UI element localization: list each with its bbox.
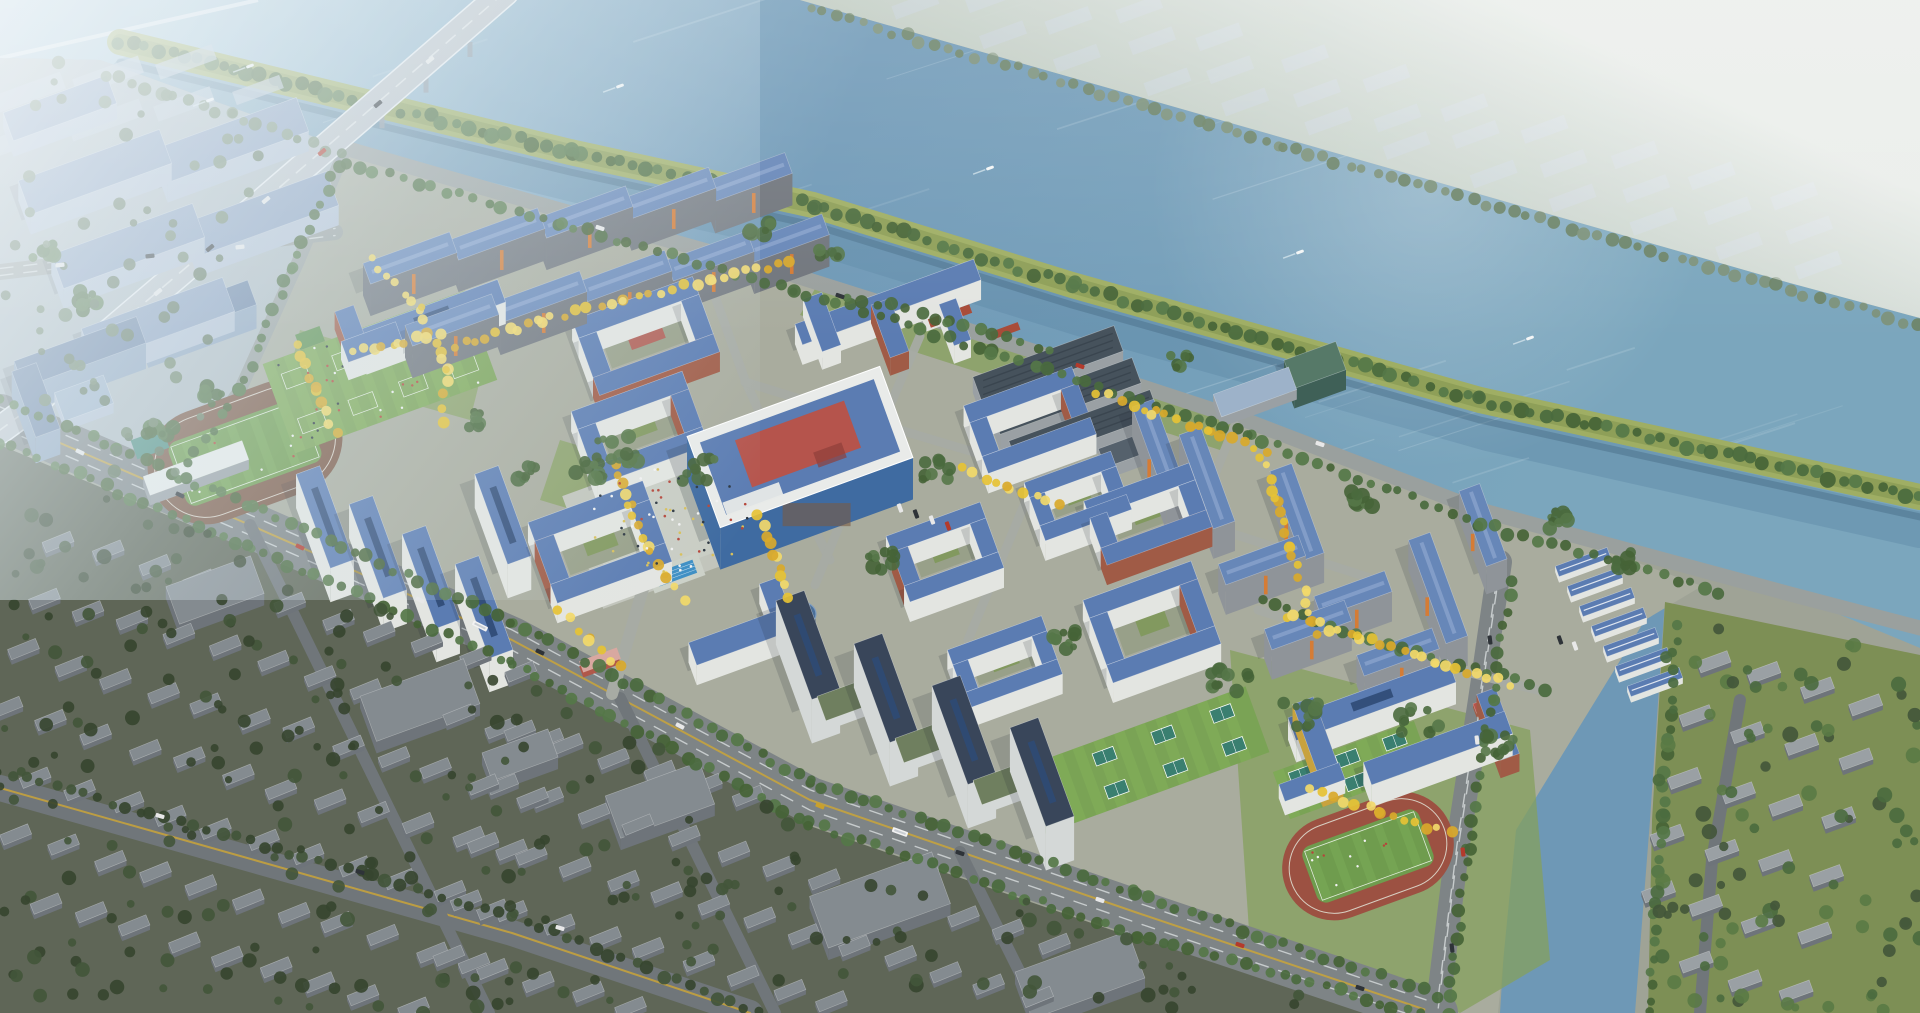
levee-tree xyxy=(1408,376,1419,387)
residential-tree xyxy=(374,603,388,617)
residential-tree xyxy=(202,908,215,921)
residential-tree xyxy=(336,659,346,669)
street-tree xyxy=(707,722,718,733)
street-tree xyxy=(1443,976,1455,988)
street-tree xyxy=(969,875,978,884)
park-tree xyxy=(1067,627,1081,641)
levee-tree xyxy=(1898,489,1913,504)
ginkgo-tree xyxy=(1255,453,1264,462)
street-tree xyxy=(557,643,566,652)
ginkgo-tree xyxy=(780,580,789,589)
street-tree xyxy=(668,705,677,714)
street-tree xyxy=(1167,939,1179,951)
residential-tree xyxy=(22,633,29,640)
facade-accent-stripe xyxy=(1310,641,1314,660)
street-tree xyxy=(690,758,703,771)
street-tree xyxy=(765,758,775,768)
park-tree xyxy=(1423,706,1432,715)
street-tree xyxy=(1672,620,1682,630)
east-bank-tree xyxy=(1829,880,1839,890)
residential-tree xyxy=(375,806,383,814)
street-tree xyxy=(1475,771,1484,780)
east-bank-tree xyxy=(1750,681,1762,693)
east-bank-tree xyxy=(1702,824,1717,839)
street-tree xyxy=(1643,565,1653,575)
east-bank-tree xyxy=(1715,938,1725,948)
ginkgo-tree xyxy=(1275,507,1286,518)
residential-tree xyxy=(186,757,196,767)
east-bank-tree xyxy=(1892,838,1902,848)
levee-tree xyxy=(1580,420,1590,430)
street-tree xyxy=(52,780,62,790)
residential-tree xyxy=(75,962,90,977)
street-tree xyxy=(807,775,816,784)
residential-tree xyxy=(410,770,422,782)
ginkgo-tree xyxy=(1300,598,1310,608)
street-tree xyxy=(984,347,998,361)
residential-tree xyxy=(17,767,26,776)
street-tree xyxy=(584,697,594,707)
east-bank-tree xyxy=(1822,1001,1834,1013)
residential-tree xyxy=(9,599,20,610)
ginkgo-tree xyxy=(1433,824,1440,831)
park-tree xyxy=(1364,498,1380,514)
street-tree xyxy=(1295,943,1304,952)
street-tree xyxy=(992,879,1006,893)
residential-tree xyxy=(810,932,823,945)
street-tree xyxy=(605,668,619,682)
street-tree xyxy=(455,636,464,645)
street-tree xyxy=(1666,725,1675,734)
street-tree xyxy=(467,641,477,651)
residential-tree xyxy=(124,639,137,652)
east-bank-tree xyxy=(1656,808,1671,823)
residential-tree xyxy=(229,668,241,680)
street-tree xyxy=(1650,936,1660,946)
street-tree xyxy=(858,795,869,806)
residential-tree xyxy=(127,900,135,908)
street-tree xyxy=(743,743,752,752)
residential-tree xyxy=(491,805,502,816)
street-tree xyxy=(1651,925,1662,936)
campus-aerial-rendering xyxy=(0,0,1920,1013)
east-bank-tree xyxy=(1689,873,1703,887)
residential-tree xyxy=(1138,961,1146,969)
street-tree xyxy=(898,810,906,818)
ginkgo-tree xyxy=(1284,542,1295,553)
east-bank-tree xyxy=(1782,861,1795,874)
street-tree xyxy=(1282,448,1293,459)
residential-tree xyxy=(366,857,378,869)
street-tree xyxy=(246,835,256,845)
street-tree xyxy=(66,784,76,794)
street-tree xyxy=(1039,896,1047,904)
east-bank-tree xyxy=(1778,682,1788,692)
residential-tree xyxy=(33,989,47,1003)
street-tree xyxy=(1060,864,1072,876)
street-tree xyxy=(602,709,616,723)
residential-tree xyxy=(1169,987,1179,997)
residential-tree xyxy=(590,975,600,985)
residential-tree xyxy=(672,858,681,867)
park-tree xyxy=(1481,746,1491,756)
street-tree xyxy=(1062,907,1075,920)
street-tree xyxy=(518,623,532,637)
levee-tree xyxy=(1500,401,1512,413)
residential-tree xyxy=(774,887,783,896)
park-tree xyxy=(1620,550,1635,565)
east-bank-tree xyxy=(1867,989,1877,999)
residential-tree xyxy=(675,911,684,920)
residential-tree xyxy=(158,619,168,629)
street-tree xyxy=(565,693,577,705)
residential-tree xyxy=(48,799,58,809)
residential-tree xyxy=(212,756,225,769)
ginkgo-tree xyxy=(1129,401,1140,412)
residential-tree xyxy=(286,867,299,880)
ginkgo-tree xyxy=(597,645,606,654)
residential-tree xyxy=(64,837,72,845)
residential-tree xyxy=(715,910,725,920)
residential-tree xyxy=(623,736,637,750)
residential-tree xyxy=(566,780,580,794)
street-tree xyxy=(1349,991,1358,1000)
street-tree xyxy=(464,901,474,911)
street-tree xyxy=(506,911,517,922)
residential-tree xyxy=(91,668,102,679)
street-tree xyxy=(1470,801,1482,813)
ginkgo-tree xyxy=(1401,647,1409,655)
street-tree xyxy=(1404,1005,1413,1013)
east-bank-tree xyxy=(1877,787,1892,802)
atmosphere-sheen xyxy=(0,0,1920,340)
street-tree xyxy=(1295,452,1309,466)
ginkgo-tree xyxy=(1366,801,1376,811)
street-tree xyxy=(493,906,504,917)
street-tree xyxy=(1647,998,1655,1006)
street-tree xyxy=(1353,475,1363,485)
levee-tree xyxy=(1878,482,1888,492)
levee-tree xyxy=(1348,356,1359,367)
levee-tree xyxy=(1655,432,1665,442)
ginkgo-tree xyxy=(1400,817,1408,825)
residential-tree xyxy=(163,835,175,847)
residential-tree xyxy=(1047,921,1062,936)
levee-tree xyxy=(1463,390,1472,399)
residential-tree xyxy=(124,947,135,958)
residential-tree xyxy=(203,984,213,994)
street-tree xyxy=(1668,696,1677,705)
residential-tree xyxy=(354,979,368,993)
residential-tree xyxy=(925,949,938,962)
residential-tree xyxy=(425,903,437,915)
ginkgo-tree xyxy=(1054,499,1064,509)
residential-tree xyxy=(161,953,175,967)
street-tree xyxy=(925,817,938,830)
street-tree xyxy=(711,992,725,1006)
street-tree xyxy=(143,807,155,819)
levee-tree xyxy=(1744,452,1756,464)
street-tree xyxy=(739,784,753,798)
residential-tree xyxy=(340,609,353,622)
ginkgo-tree xyxy=(1440,660,1452,672)
street-tree xyxy=(1524,679,1535,690)
park-tree xyxy=(926,468,938,480)
street-tree xyxy=(1654,855,1663,864)
street-tree xyxy=(1698,582,1712,596)
ginkgo-tree xyxy=(1338,797,1349,808)
street-tree xyxy=(1660,796,1671,807)
street-tree xyxy=(542,633,555,646)
ginkgo-tree xyxy=(1195,421,1204,430)
east-bank-tree xyxy=(1714,956,1729,971)
residential-tree xyxy=(435,973,450,988)
street-tree xyxy=(915,812,927,824)
levee-tree xyxy=(1723,447,1734,458)
levee-tree xyxy=(1669,437,1679,447)
residential-tree xyxy=(686,957,696,967)
street-tree xyxy=(1236,925,1250,939)
residential-tree xyxy=(332,880,345,893)
ginkgo-tree xyxy=(1323,625,1335,637)
ginkgo-tree xyxy=(1250,445,1257,452)
street-tree xyxy=(665,741,679,755)
residential-tree xyxy=(781,817,795,831)
east-bank-tree xyxy=(1819,905,1833,919)
residential-tree xyxy=(683,866,693,876)
levee-tree xyxy=(1472,391,1486,405)
street-tree xyxy=(1448,509,1458,519)
residential-tree xyxy=(220,967,232,979)
street-tree xyxy=(738,1004,747,1013)
street-tree xyxy=(545,679,553,687)
residential-tree xyxy=(333,688,343,698)
street-tree xyxy=(869,795,882,808)
residential-tree xyxy=(618,891,629,902)
east-bank-tree xyxy=(1763,724,1773,734)
street-tree xyxy=(900,851,911,862)
residential-tree xyxy=(98,989,109,1000)
residential-tree xyxy=(163,822,172,831)
street-tree xyxy=(1128,887,1142,901)
street-tree xyxy=(645,730,654,739)
east-bank-tree xyxy=(1689,656,1702,669)
park-tree xyxy=(1508,735,1518,745)
residential-tree xyxy=(541,915,550,924)
street-tree xyxy=(443,628,453,638)
street-tree xyxy=(1486,707,1496,717)
ginkgo-tree xyxy=(1315,617,1325,627)
street-tree xyxy=(996,840,1006,850)
east-bank-tree xyxy=(1719,842,1728,851)
residential-tree xyxy=(708,944,719,955)
street-tree xyxy=(1205,416,1217,428)
ginkgo-tree xyxy=(1417,651,1427,661)
residential-tree xyxy=(68,938,76,946)
street-tree xyxy=(1009,846,1022,859)
street-tree xyxy=(1045,346,1053,354)
street-tree xyxy=(1266,968,1276,978)
street-tree xyxy=(870,838,881,849)
street-tree xyxy=(1323,981,1331,989)
park-tree xyxy=(1166,351,1175,360)
street-tree xyxy=(630,678,644,692)
park-tree xyxy=(886,549,900,563)
east-bank-tree xyxy=(1883,944,1896,957)
street-tree xyxy=(1255,435,1269,449)
street-tree xyxy=(78,788,87,797)
residential-tree xyxy=(106,913,116,923)
ginkgo-tree xyxy=(1280,517,1288,525)
ginkgo-tree xyxy=(1302,589,1310,597)
levee-tree xyxy=(1616,424,1630,438)
street-tree xyxy=(480,903,490,913)
street-tree xyxy=(1496,634,1504,642)
residential-tree xyxy=(760,800,774,814)
residential-tree xyxy=(1093,992,1105,1004)
street-tree xyxy=(1491,647,1504,660)
residential-tree xyxy=(561,707,573,719)
residential-tree xyxy=(506,997,514,1005)
street-tree xyxy=(1673,577,1684,588)
levee-tree xyxy=(1589,417,1603,431)
street-tree xyxy=(1213,914,1222,923)
residential-tree xyxy=(490,715,505,730)
east-bank-tree xyxy=(1755,915,1768,928)
street-tree xyxy=(1573,548,1584,559)
east-bank-tree xyxy=(1704,709,1715,720)
ginkgo-tree xyxy=(1348,799,1360,811)
east-bank-tree xyxy=(1781,997,1795,1011)
levee-tree xyxy=(1888,485,1898,495)
street-tree xyxy=(815,782,827,794)
ginkgo-tree xyxy=(1462,669,1471,678)
residential-tree xyxy=(404,871,418,885)
east-bank-tree xyxy=(1883,927,1897,941)
street-tree xyxy=(794,768,805,779)
street-tree xyxy=(950,866,962,878)
levee-tree xyxy=(1525,408,1534,417)
park-tree xyxy=(1221,668,1234,681)
street-tree xyxy=(1506,575,1518,587)
street-tree xyxy=(109,801,118,810)
street-tree xyxy=(1013,355,1024,366)
residential-tree xyxy=(107,840,118,851)
residential-tree xyxy=(465,783,473,791)
residential-tree xyxy=(63,701,74,712)
residential-tree xyxy=(1165,962,1173,970)
levee-tree xyxy=(1358,357,1373,372)
street-tree xyxy=(779,764,791,776)
street-tree xyxy=(508,660,517,669)
east-bank-tree xyxy=(1651,885,1665,899)
residential-tree xyxy=(313,743,321,751)
residential-tree xyxy=(82,608,95,621)
street-tree xyxy=(1079,375,1091,387)
ginkgo-tree xyxy=(1375,640,1385,650)
street-tree xyxy=(1258,595,1267,604)
ginkgo-tree xyxy=(1185,421,1196,432)
residential-tree xyxy=(187,831,196,840)
ginkgo-tree xyxy=(1305,609,1312,616)
residential-tree xyxy=(470,973,479,982)
east-bank-tree xyxy=(1717,994,1725,1002)
street-tree xyxy=(1389,980,1398,989)
street-tree xyxy=(1444,989,1457,1002)
levee-tree xyxy=(1679,441,1694,456)
ginkgo-tree xyxy=(1305,617,1314,626)
ginkgo-tree xyxy=(1374,808,1385,819)
ginkgo-tree xyxy=(767,550,778,561)
park-tree xyxy=(1351,489,1362,500)
street-tree xyxy=(413,883,423,893)
street-tree xyxy=(601,949,615,963)
residential-tree xyxy=(1289,999,1299,1009)
residential-tree xyxy=(217,899,230,912)
street-tree xyxy=(1546,537,1557,548)
levee-tree xyxy=(1861,482,1873,494)
street-tree xyxy=(1448,952,1457,961)
street-tree xyxy=(927,857,938,868)
levee-tree xyxy=(1283,341,1295,353)
residential-tree xyxy=(223,614,236,627)
street-tree xyxy=(1532,536,1544,548)
residential-tree xyxy=(297,845,305,853)
street-tree xyxy=(1668,664,1679,675)
street-tree xyxy=(1489,519,1502,532)
street-tree xyxy=(1116,886,1124,894)
ginkgo-tree xyxy=(1270,494,1278,502)
east-bank-tree xyxy=(1699,932,1709,942)
street-tree xyxy=(1393,486,1401,494)
levee-tree xyxy=(1449,389,1463,403)
residential-tree xyxy=(270,853,278,861)
levee-tree xyxy=(1780,460,1795,475)
street-tree xyxy=(1076,912,1085,921)
facade-accent-stripe xyxy=(1264,576,1268,595)
street-tree xyxy=(1087,875,1098,886)
street-tree xyxy=(775,805,789,819)
residential-tree xyxy=(790,852,800,862)
residential-tree xyxy=(326,901,336,911)
residential-tree xyxy=(306,1003,314,1011)
street-tree xyxy=(685,980,696,991)
park-tree xyxy=(1543,521,1557,535)
levee-tree xyxy=(1486,400,1497,411)
street-tree xyxy=(426,624,439,637)
street-tree xyxy=(424,889,433,898)
street-tree xyxy=(704,762,715,773)
library-louvers xyxy=(783,503,851,526)
street-tree xyxy=(1034,855,1043,864)
residential-tree xyxy=(386,613,393,620)
residential-tree xyxy=(1120,932,1133,945)
residential-tree xyxy=(1,725,8,732)
east-bank-tree xyxy=(1680,904,1690,914)
street-tree xyxy=(534,923,544,933)
street-tree xyxy=(393,879,406,892)
residential-tree xyxy=(282,729,295,742)
street-tree xyxy=(1225,918,1234,927)
residential-tree xyxy=(1074,928,1084,938)
street-tree xyxy=(1462,514,1471,523)
residential-tree xyxy=(579,843,593,857)
residential-tree xyxy=(487,675,498,686)
residential-tree xyxy=(623,881,631,889)
street-tree xyxy=(1338,469,1351,482)
residential-tree xyxy=(557,986,569,998)
residential-tree xyxy=(381,661,391,671)
